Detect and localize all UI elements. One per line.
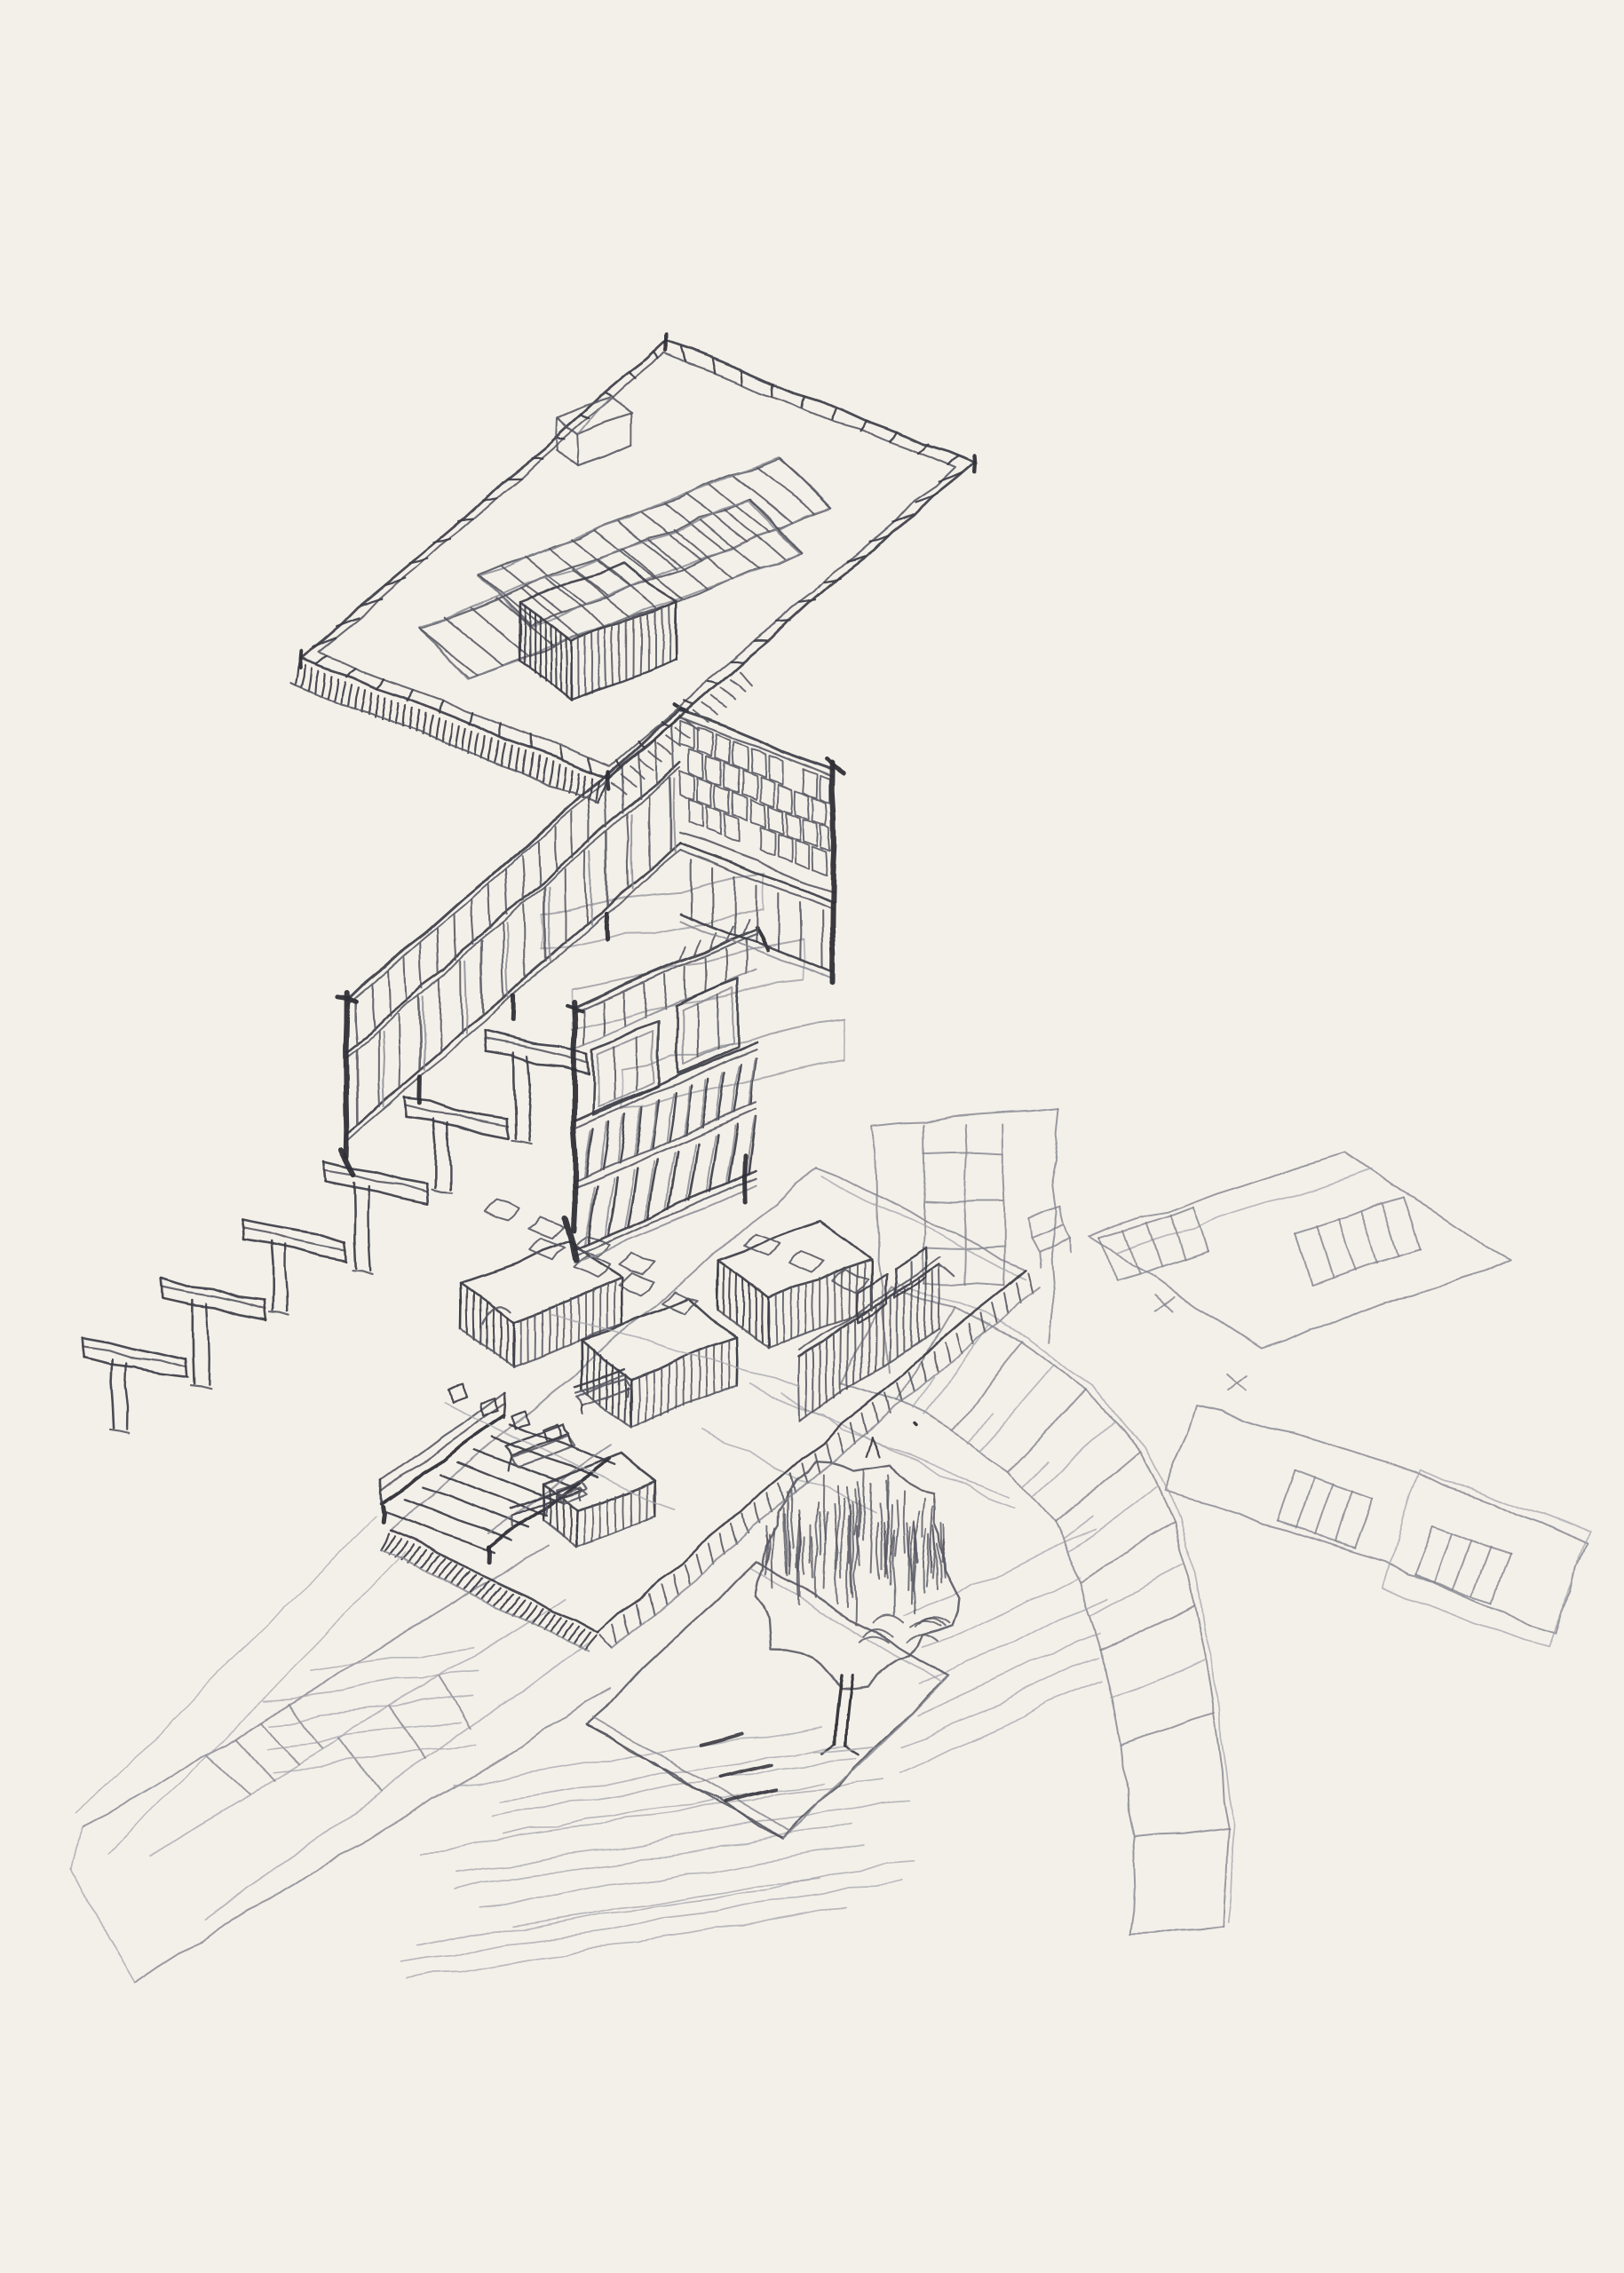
paper-background (0, 0, 1624, 2273)
architectural-sketch (0, 0, 1624, 2273)
sketch-svg (0, 0, 1624, 2273)
